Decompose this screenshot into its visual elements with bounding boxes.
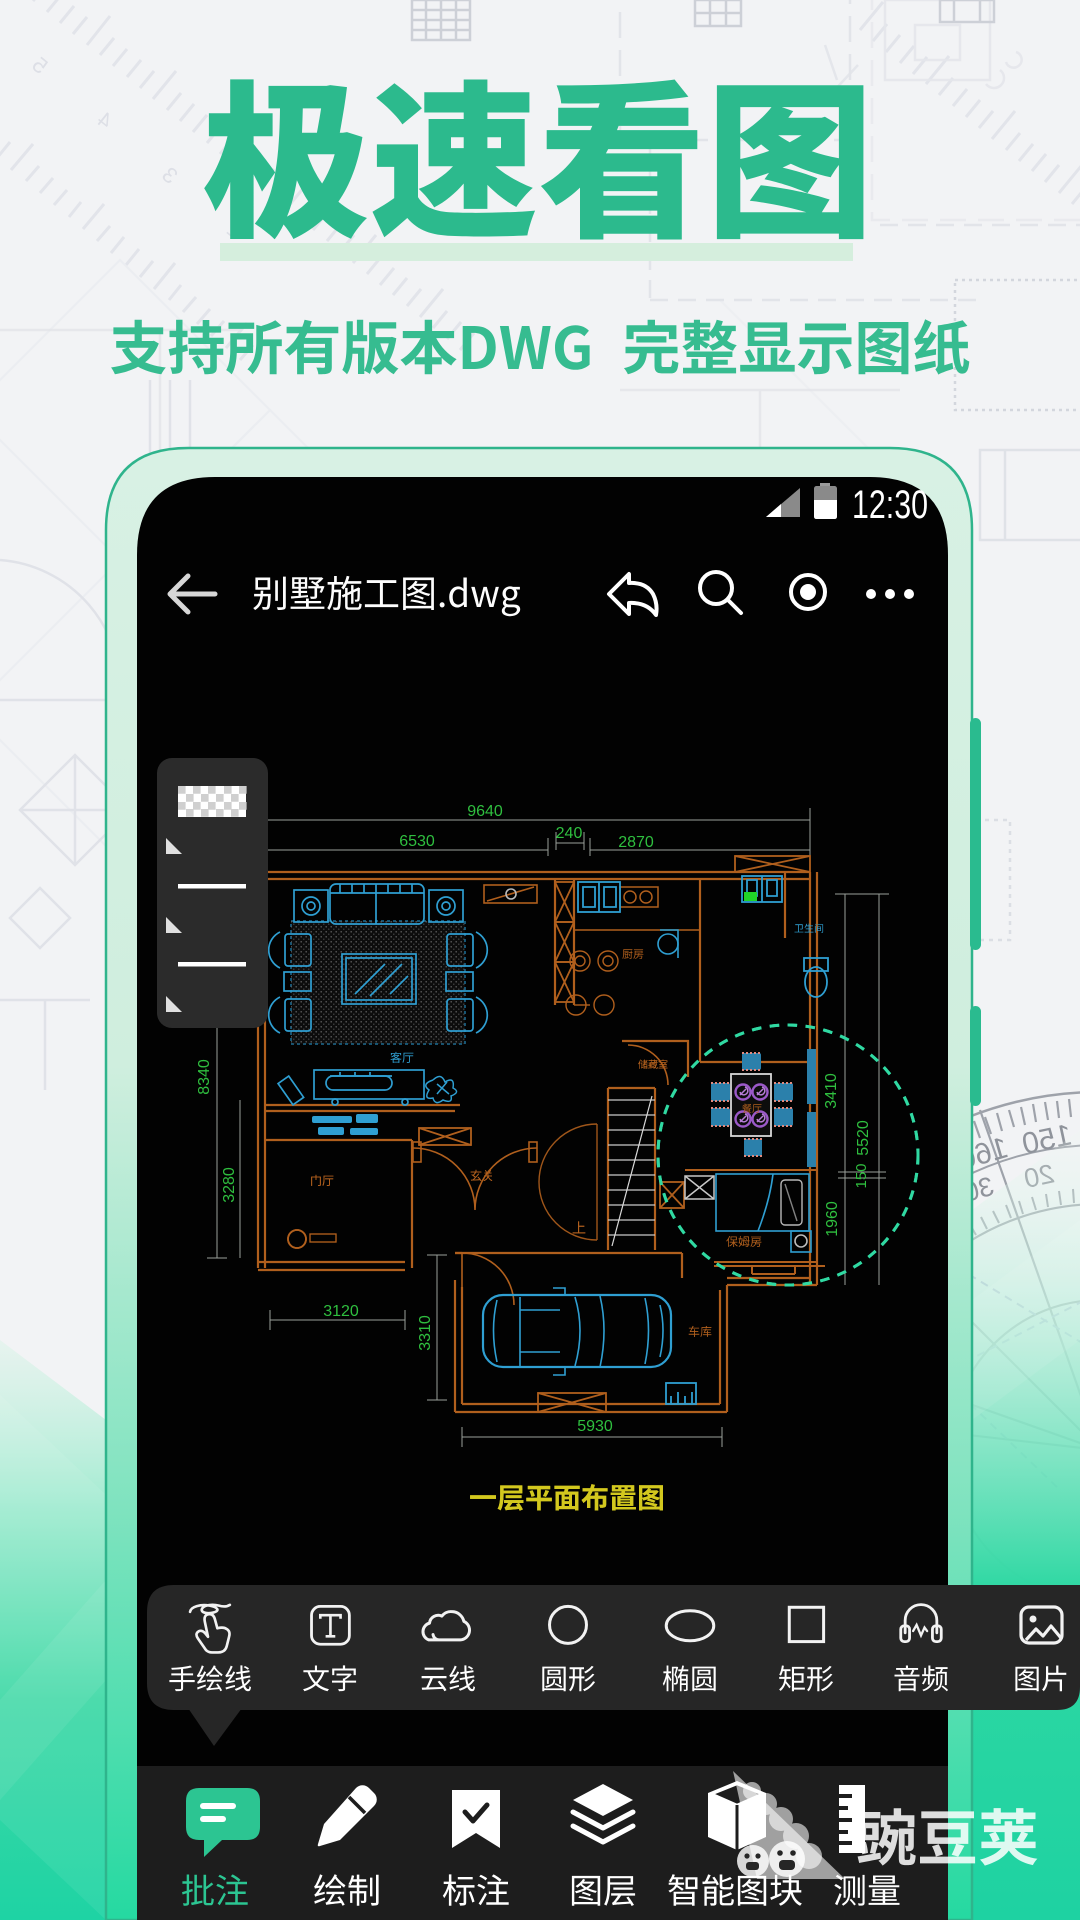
- svg-text:3120: 3120: [323, 1303, 359, 1320]
- svg-text:150: 150: [853, 1163, 870, 1188]
- svg-text:1960: 1960: [824, 1201, 841, 1237]
- svg-text:240: 240: [556, 825, 583, 842]
- svg-text:12:30: 12:30: [852, 483, 928, 527]
- svg-text:5520: 5520: [855, 1120, 872, 1156]
- svg-text:3310: 3310: [417, 1315, 434, 1351]
- svg-text:9640: 9640: [467, 803, 503, 820]
- svg-text:5930: 5930: [577, 1418, 613, 1435]
- svg-text:2870: 2870: [618, 834, 654, 851]
- svg-text:6530: 6530: [399, 833, 435, 850]
- svg-text:3410: 3410: [823, 1073, 840, 1109]
- svg-text:3280: 3280: [221, 1167, 238, 1203]
- svg-text:8340: 8340: [196, 1059, 213, 1095]
